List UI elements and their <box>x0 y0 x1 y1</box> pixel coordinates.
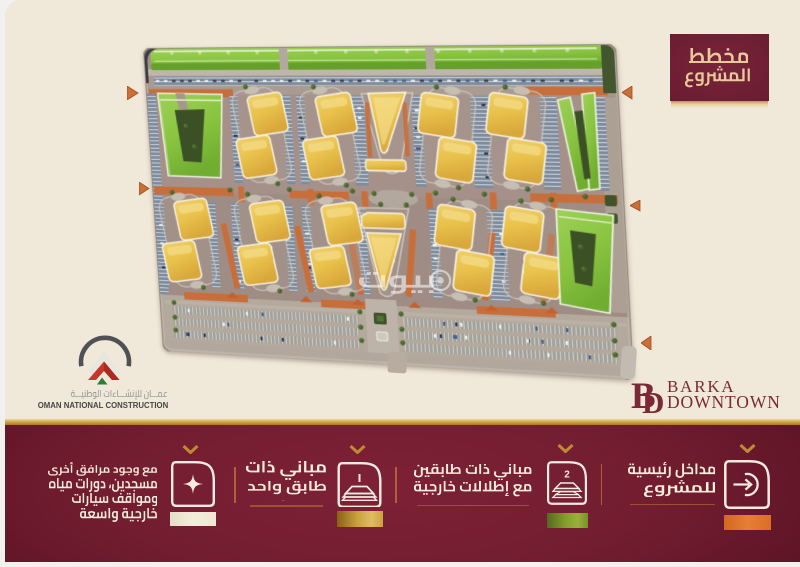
svg-text:2: 2 <box>564 470 570 481</box>
